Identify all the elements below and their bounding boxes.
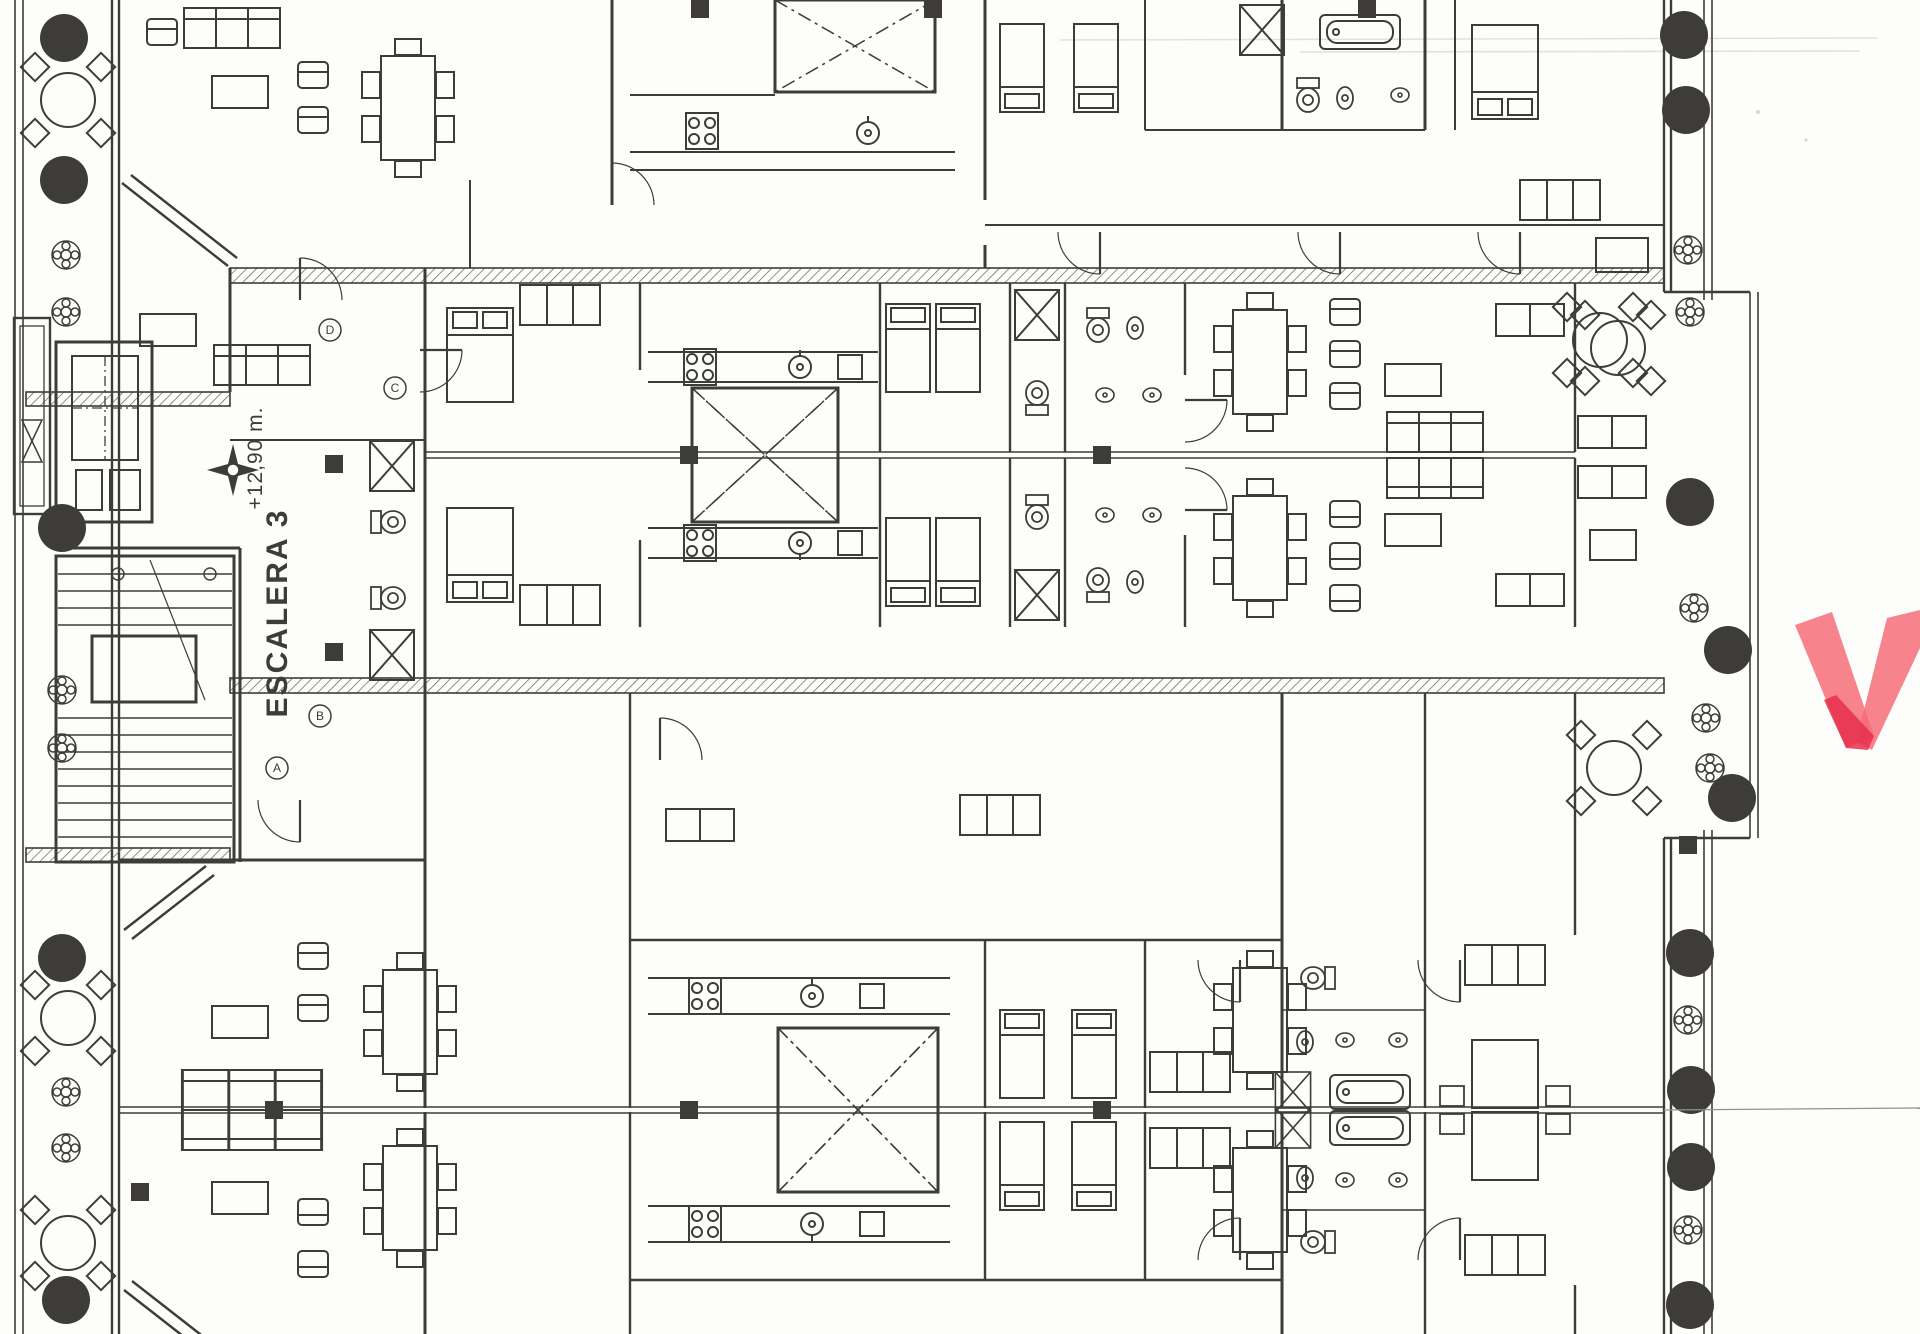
svg-text:D: D <box>326 323 335 337</box>
column-icon <box>1666 1281 1714 1329</box>
column-icon <box>1093 1101 1111 1119</box>
svg-text:B: B <box>316 709 324 723</box>
column-icon <box>40 14 88 62</box>
column-icon <box>1704 626 1752 674</box>
svg-text:A: A <box>273 761 281 775</box>
column-icon <box>325 455 343 473</box>
column-icon <box>1662 86 1710 134</box>
column-icon <box>1666 478 1714 526</box>
column-icon <box>131 1183 149 1201</box>
column-icon <box>40 156 88 204</box>
column-icon <box>680 1101 698 1119</box>
column-icon <box>325 643 343 661</box>
column-icon <box>1660 11 1708 59</box>
column-icon <box>1093 446 1111 464</box>
column-icon <box>924 0 942 18</box>
level-label: +12,90 m. <box>244 407 267 510</box>
column-icon <box>691 0 709 18</box>
column-icon <box>680 446 698 464</box>
column-icon <box>1708 774 1756 822</box>
floor-plan-drawing: ESCALERA 3 +12,90 m. D C B A <box>0 0 1920 1334</box>
stair-label: ESCALERA 3 <box>261 509 294 718</box>
column-icon <box>38 504 86 552</box>
column-icon <box>1667 1066 1715 1114</box>
column-icon <box>1667 1143 1715 1191</box>
svg-text:C: C <box>391 381 400 395</box>
column-icon <box>38 934 86 982</box>
column-icon <box>1666 929 1714 977</box>
column-icon <box>1679 836 1697 854</box>
floor-plan-page: ESCALERA 3 +12,90 m. D C B A <box>0 0 1920 1334</box>
column-icon <box>42 1276 90 1324</box>
